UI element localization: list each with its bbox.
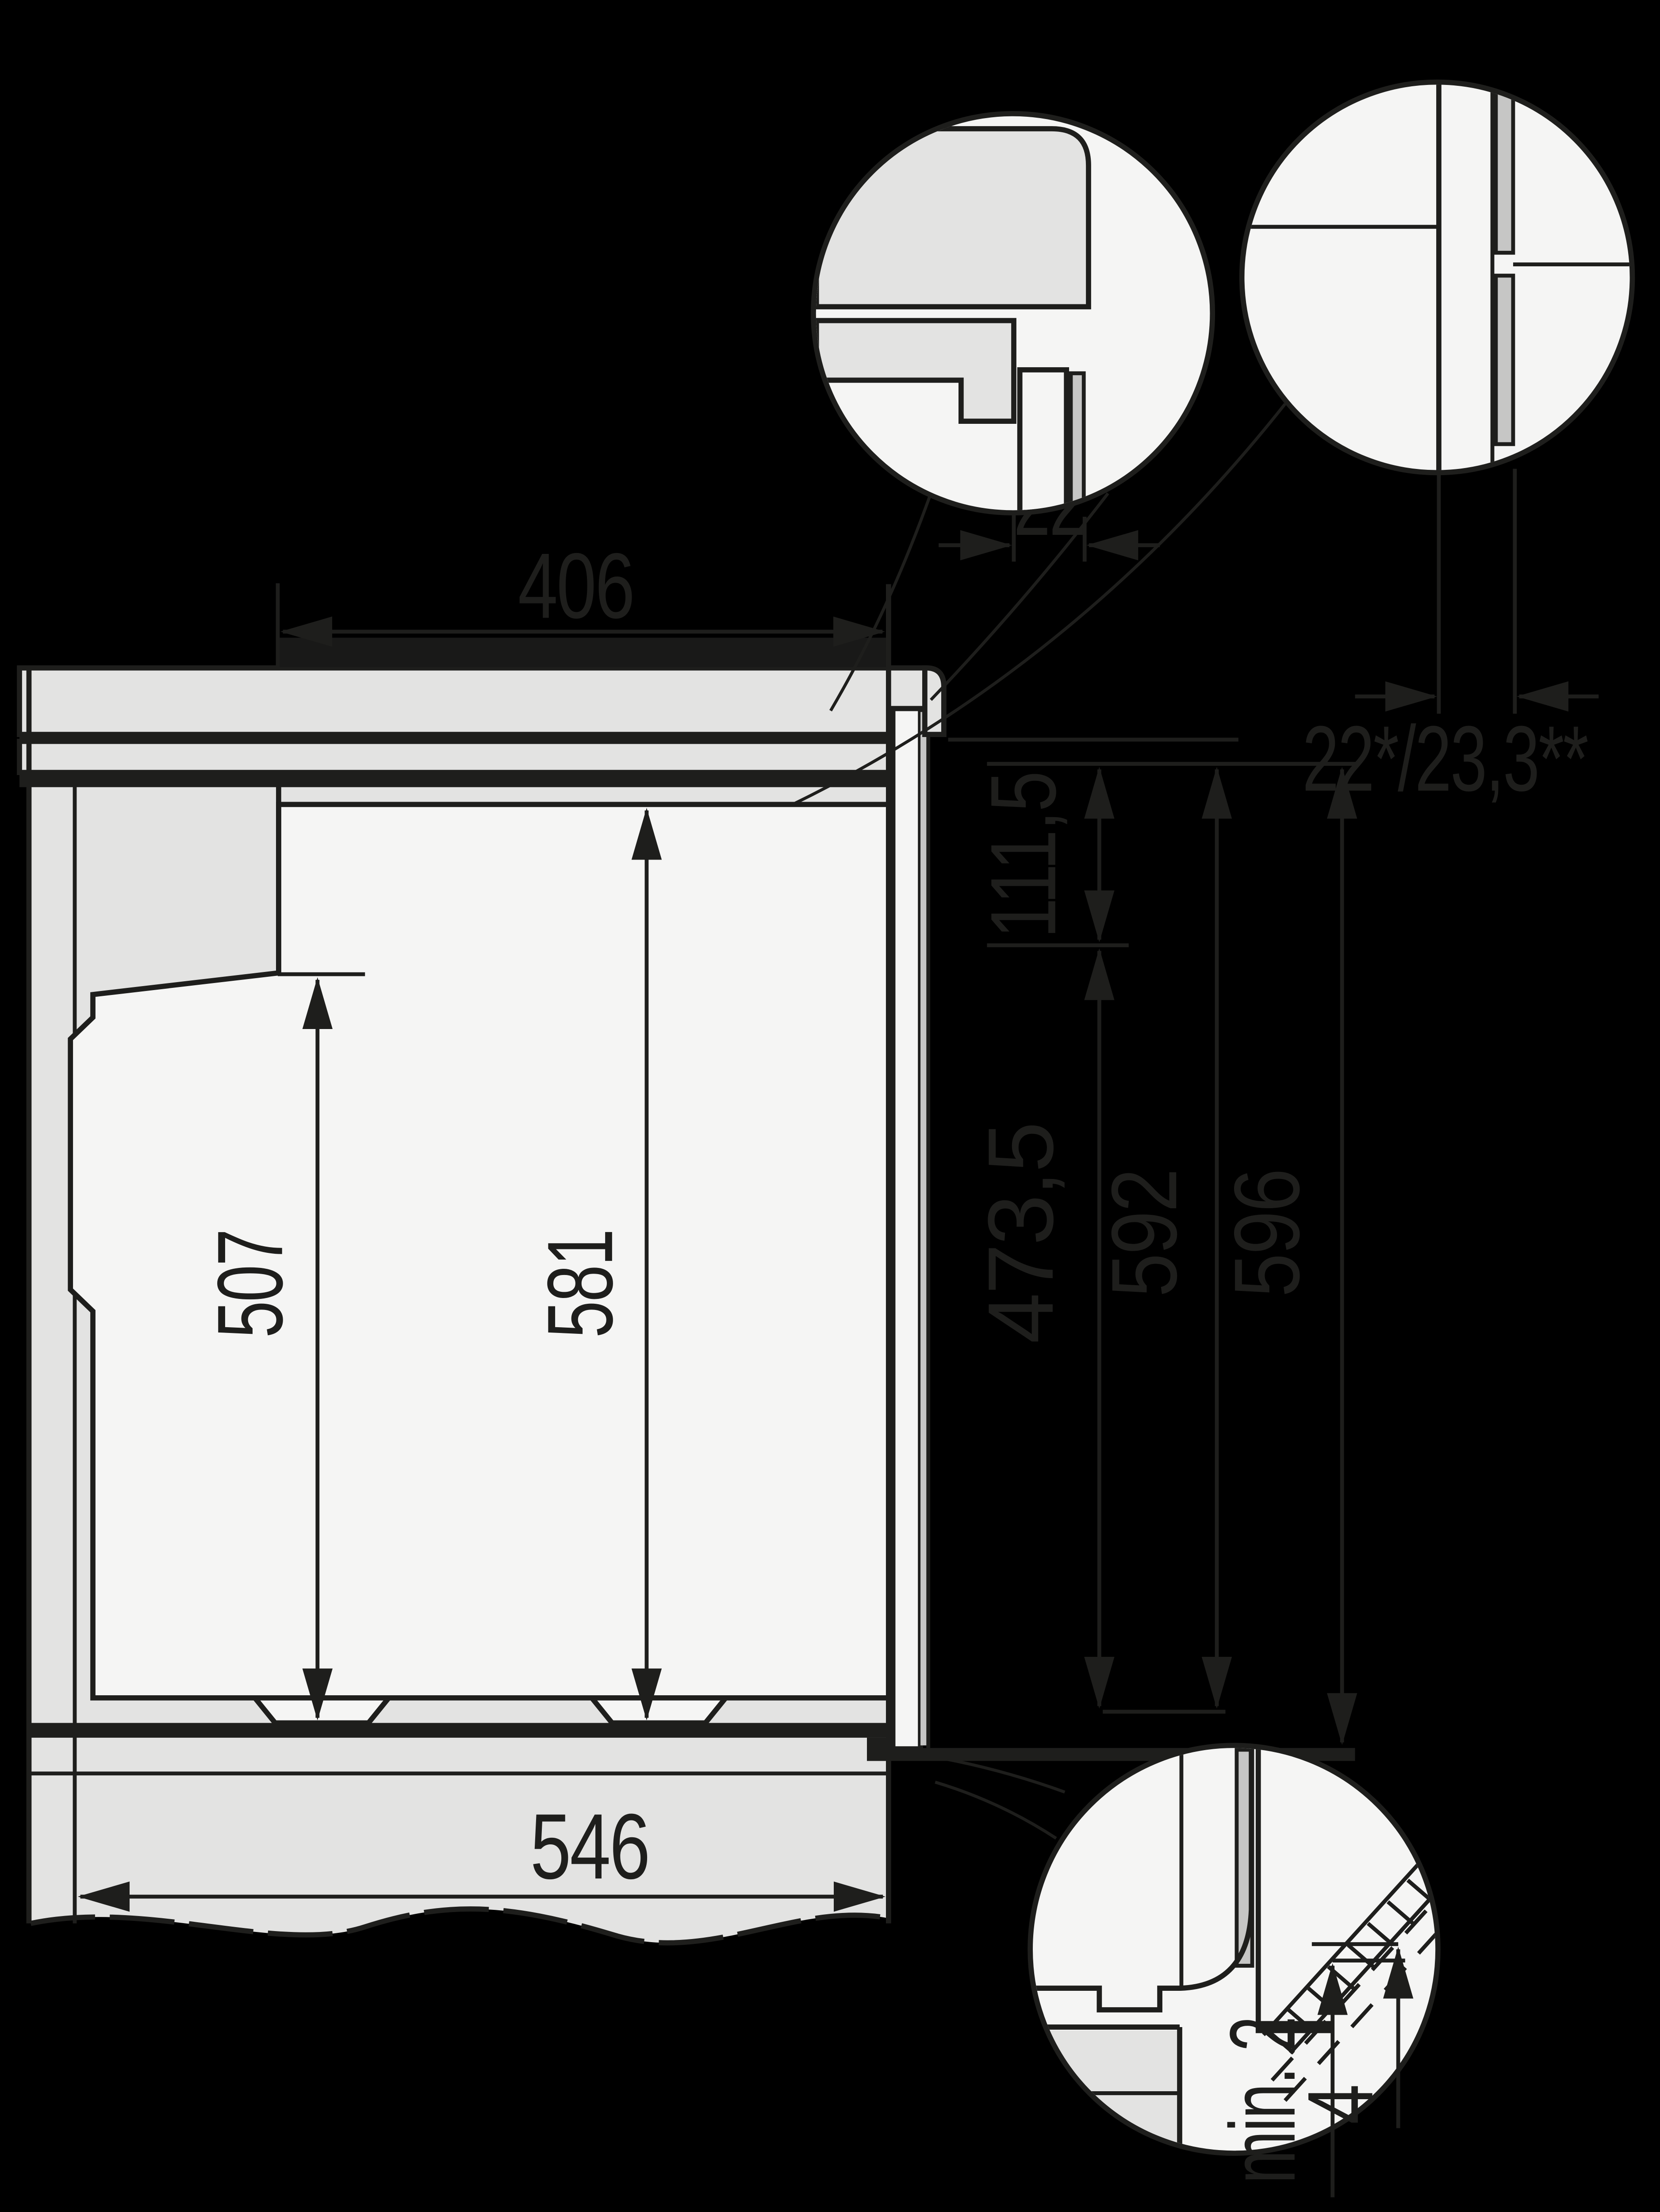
detail-circle-top-left (813, 114, 1212, 517)
door-bottom-notch (867, 1738, 889, 1750)
dim-label: 473,5 (969, 1123, 1073, 1344)
base-cabinet (31, 1738, 888, 1943)
dim-473-5: 473,5 (969, 951, 1099, 1706)
dim-label: 406 (518, 534, 634, 637)
door-glass-strip (920, 712, 927, 1745)
dim-111-5: 111,5 (972, 769, 1100, 940)
detail-countertop-block (817, 129, 1089, 307)
dim-label: 546 (530, 1795, 649, 1898)
detail-frame-upper (1496, 84, 1513, 253)
detail-door-panel (1020, 370, 1066, 517)
dim-label: 592 (1093, 1170, 1196, 1297)
top-solid-band (279, 637, 887, 667)
dim-label: 596 (1215, 1170, 1319, 1297)
dim-label: 581 (529, 1230, 632, 1338)
dim-label: 22*/23,3** (1302, 707, 1587, 810)
detail-door-glass (1071, 373, 1084, 516)
detail-circle-top-right (1242, 82, 1633, 473)
installation-diagram: 406 507 581 546 111,5 (0, 0, 1660, 2212)
countertop (19, 668, 944, 734)
dim-22-23-3: 22*/23,3** (1302, 469, 1599, 811)
detail-frame-lower (1496, 276, 1513, 444)
detail-circle-bottom: min. 2 4 (1030, 1745, 1453, 2197)
dim-label: 111,5 (972, 772, 1075, 939)
dim-596: 596 (1215, 769, 1342, 1742)
upper-cabinet-band (19, 741, 889, 772)
dim-592: 592 (1093, 769, 1217, 1706)
niche-floor-bar (31, 1723, 888, 1738)
dim-label: 507 (199, 1230, 302, 1338)
dim-label: 4 (1289, 2085, 1392, 2124)
niche-ceiling-bar (19, 772, 892, 787)
